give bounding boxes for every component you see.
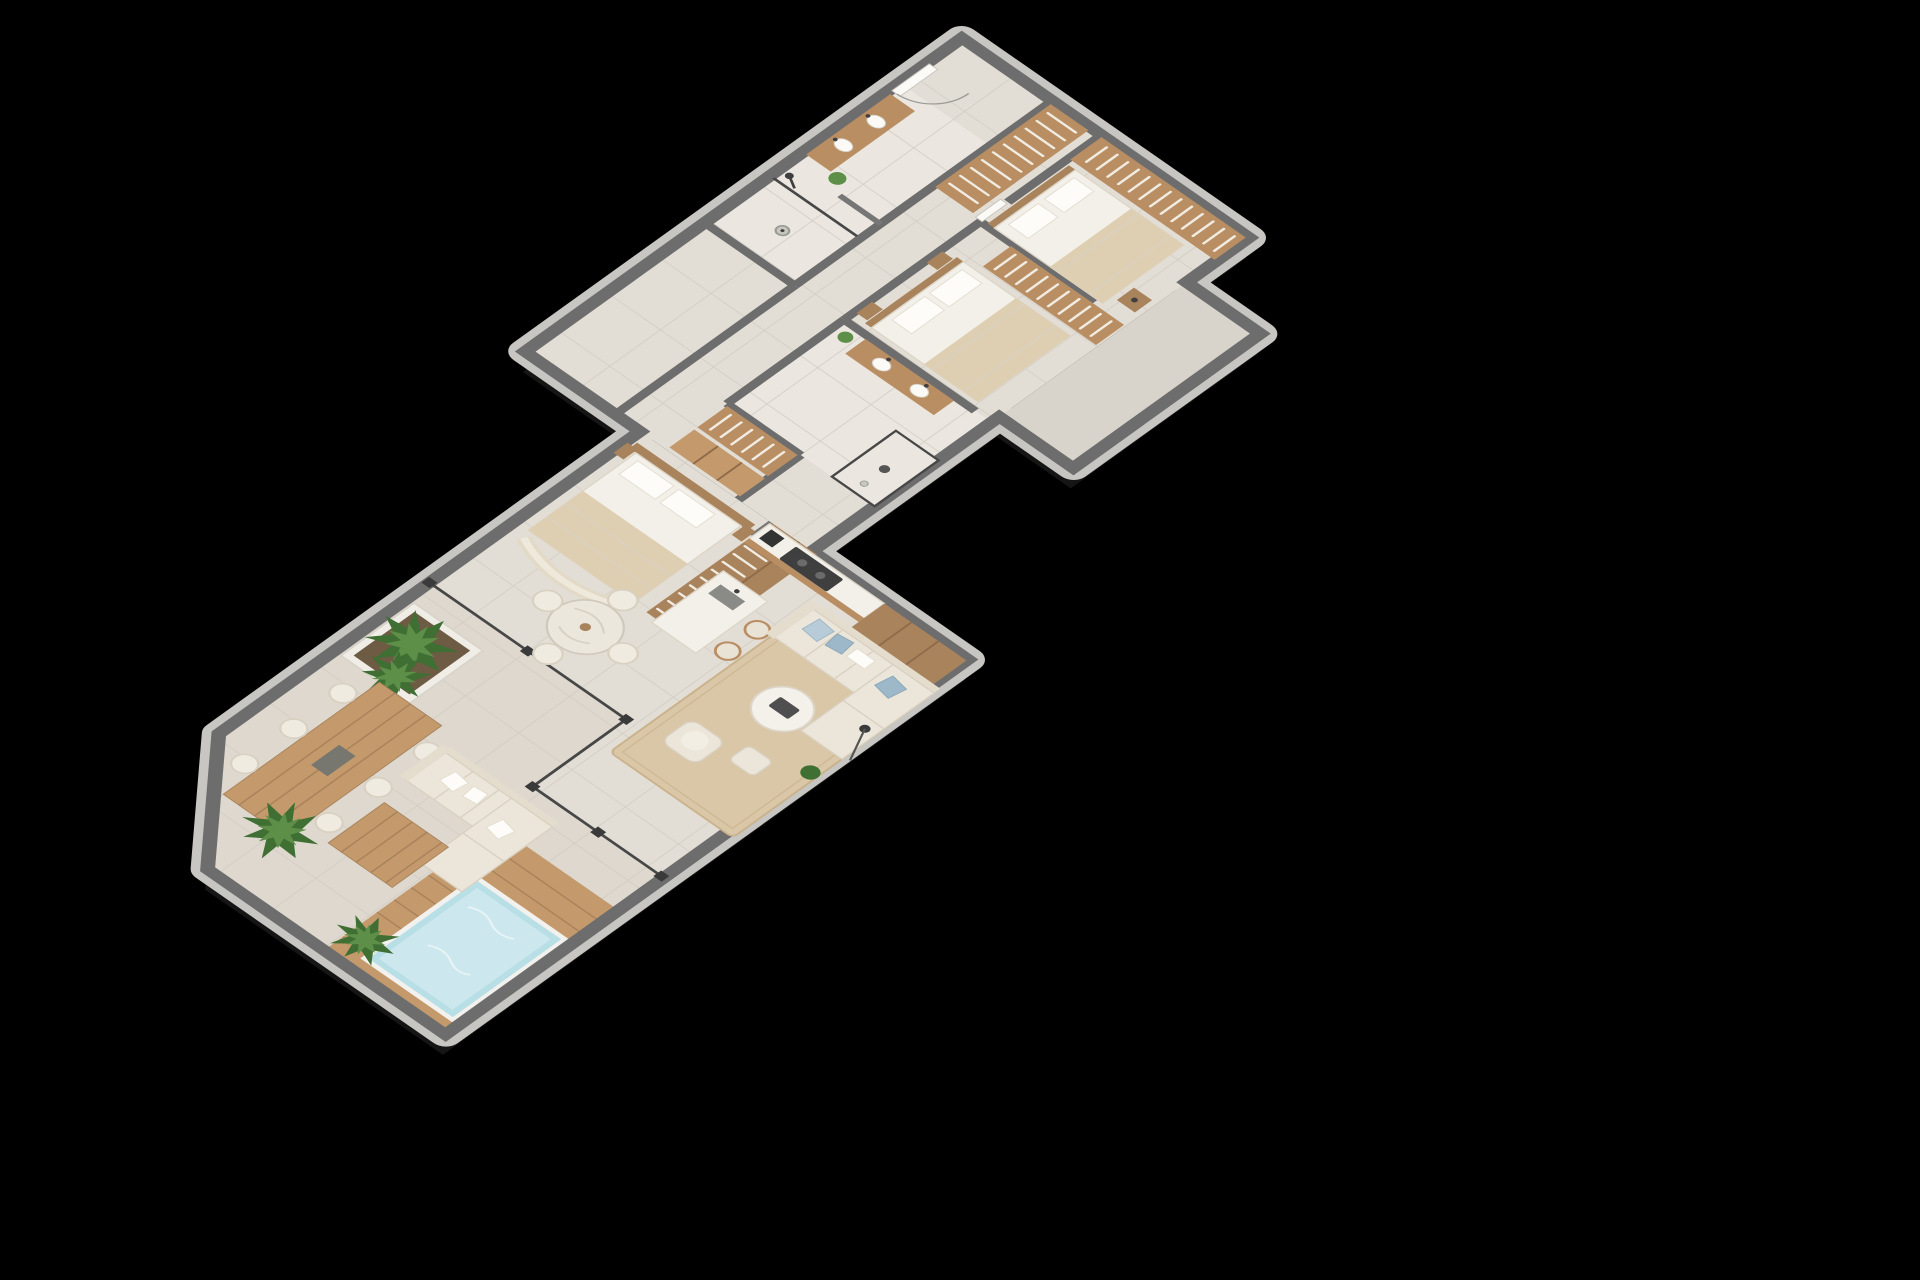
scene: [0, 0, 1920, 1280]
floor-plan-render: [0, 0, 1920, 1280]
